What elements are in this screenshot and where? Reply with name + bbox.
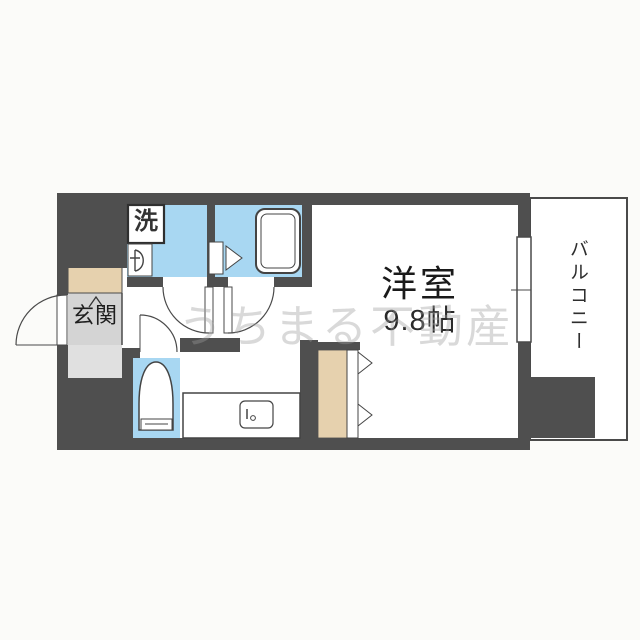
laundry-label: 洗 [128, 209, 164, 235]
wall-toilet-left [122, 348, 133, 438]
bathtub-icon [256, 209, 300, 273]
genkan-label: 玄関 [64, 304, 126, 328]
wall-left-upper [57, 193, 68, 295]
closet-door-strip [347, 350, 358, 438]
wall-bottomleft-block [57, 378, 127, 450]
wall-bottom [57, 438, 530, 450]
balcony-label: バルコニー [566, 226, 587, 366]
wall-toilet-top [127, 348, 140, 358]
floorplan-image: 洗 玄関 洋室 9.8帖 バルコニー うちまる不動産 [0, 0, 640, 640]
wall-kitchen-closet-divider [300, 340, 318, 438]
watermark-text: うちまる不動産 [178, 302, 478, 352]
wall-right-lower [518, 342, 530, 438]
washbasin [128, 244, 152, 276]
kitchen-counter [183, 393, 300, 438]
wall-right-upper [518, 205, 530, 237]
wall-under-washroom [127, 277, 163, 287]
wall-between-doors [207, 277, 228, 287]
shoe-cabinet [68, 267, 122, 293]
bath-door [209, 242, 223, 274]
genkan-step [68, 345, 122, 378]
room-label: 洋室 [368, 264, 472, 304]
wall-top [57, 193, 530, 205]
closet-floor [318, 350, 347, 438]
wall-under-bath [274, 277, 312, 287]
wall-balcony-block [530, 377, 595, 438]
wall-bath-right [302, 205, 312, 287]
